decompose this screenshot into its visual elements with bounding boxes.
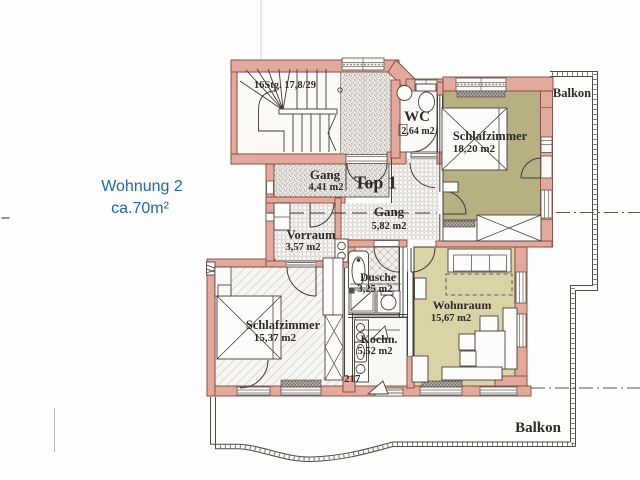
- svg-text:Gang: Gang: [310, 167, 341, 182]
- svg-text:4,41 m2: 4,41 m2: [309, 182, 344, 193]
- svg-text:Dusche: Dusche: [360, 272, 396, 284]
- svg-text:Top 1: Top 1: [354, 173, 397, 193]
- svg-text:Schlafzimmer: Schlafzimmer: [453, 129, 528, 143]
- svg-text:Balkon: Balkon: [553, 86, 591, 100]
- svg-text:WC: WC: [404, 109, 430, 125]
- svg-text:Wohnung 2: Wohnung 2: [101, 178, 183, 195]
- svg-text:15,37 m2: 15,37 m2: [254, 332, 297, 344]
- svg-text:5,52 m2: 5,52 m2: [358, 346, 393, 357]
- svg-text:Schlafzimmer: Schlafzimmer: [246, 318, 321, 332]
- svg-text:ca.70m²: ca.70m²: [111, 200, 169, 217]
- svg-text:5,82 m2: 5,82 m2: [372, 221, 407, 232]
- svg-text:Kochn.: Kochn.: [360, 332, 397, 346]
- svg-text:3,57 m2: 3,57 m2: [286, 242, 321, 253]
- svg-text:Gang: Gang: [374, 204, 405, 219]
- svg-text:16Stg. 17,8/29: 16Stg. 17,8/29: [254, 80, 316, 91]
- svg-text:3,25 m2: 3,25 m2: [358, 284, 393, 295]
- svg-text:Wohnraum: Wohnraum: [433, 298, 492, 312]
- svg-text:15,67 m2: 15,67 m2: [431, 313, 471, 324]
- svg-text:217: 217: [344, 373, 361, 385]
- svg-text:Vorraum: Vorraum: [287, 228, 336, 242]
- svg-text:Balkon: Balkon: [515, 420, 562, 436]
- svg-text:18,20 m2: 18,20 m2: [453, 143, 496, 155]
